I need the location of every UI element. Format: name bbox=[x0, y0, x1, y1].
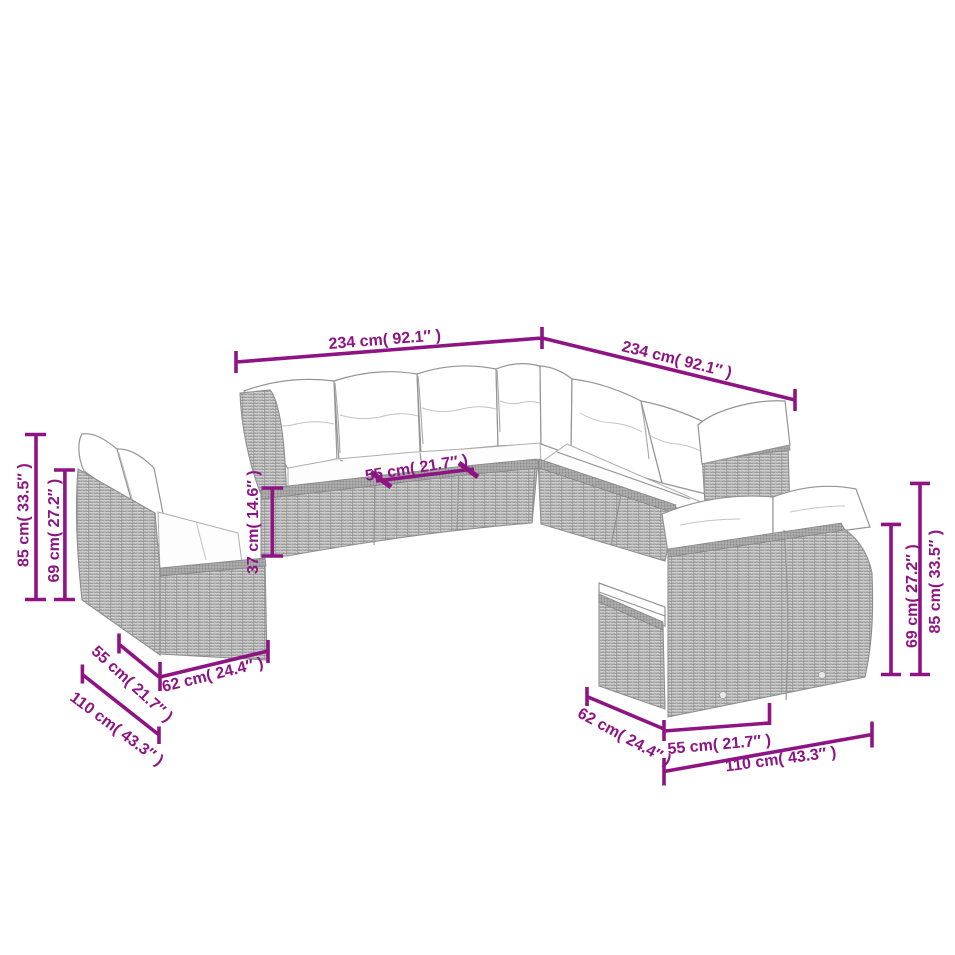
svg-text:85 cm( 33.5″ ): 85 cm( 33.5″ ) bbox=[927, 530, 944, 634]
svg-text:85 cm( 33.5″ ): 85 cm( 33.5″ ) bbox=[16, 463, 33, 567]
svg-text:69 cm( 27.2″ ): 69 cm( 27.2″ ) bbox=[904, 544, 921, 648]
svg-text:37 cm( 14.6″ ): 37 cm( 14.6″ ) bbox=[245, 470, 262, 574]
svg-text:69 cm( 27.2″ ): 69 cm( 27.2″ ) bbox=[46, 479, 63, 583]
